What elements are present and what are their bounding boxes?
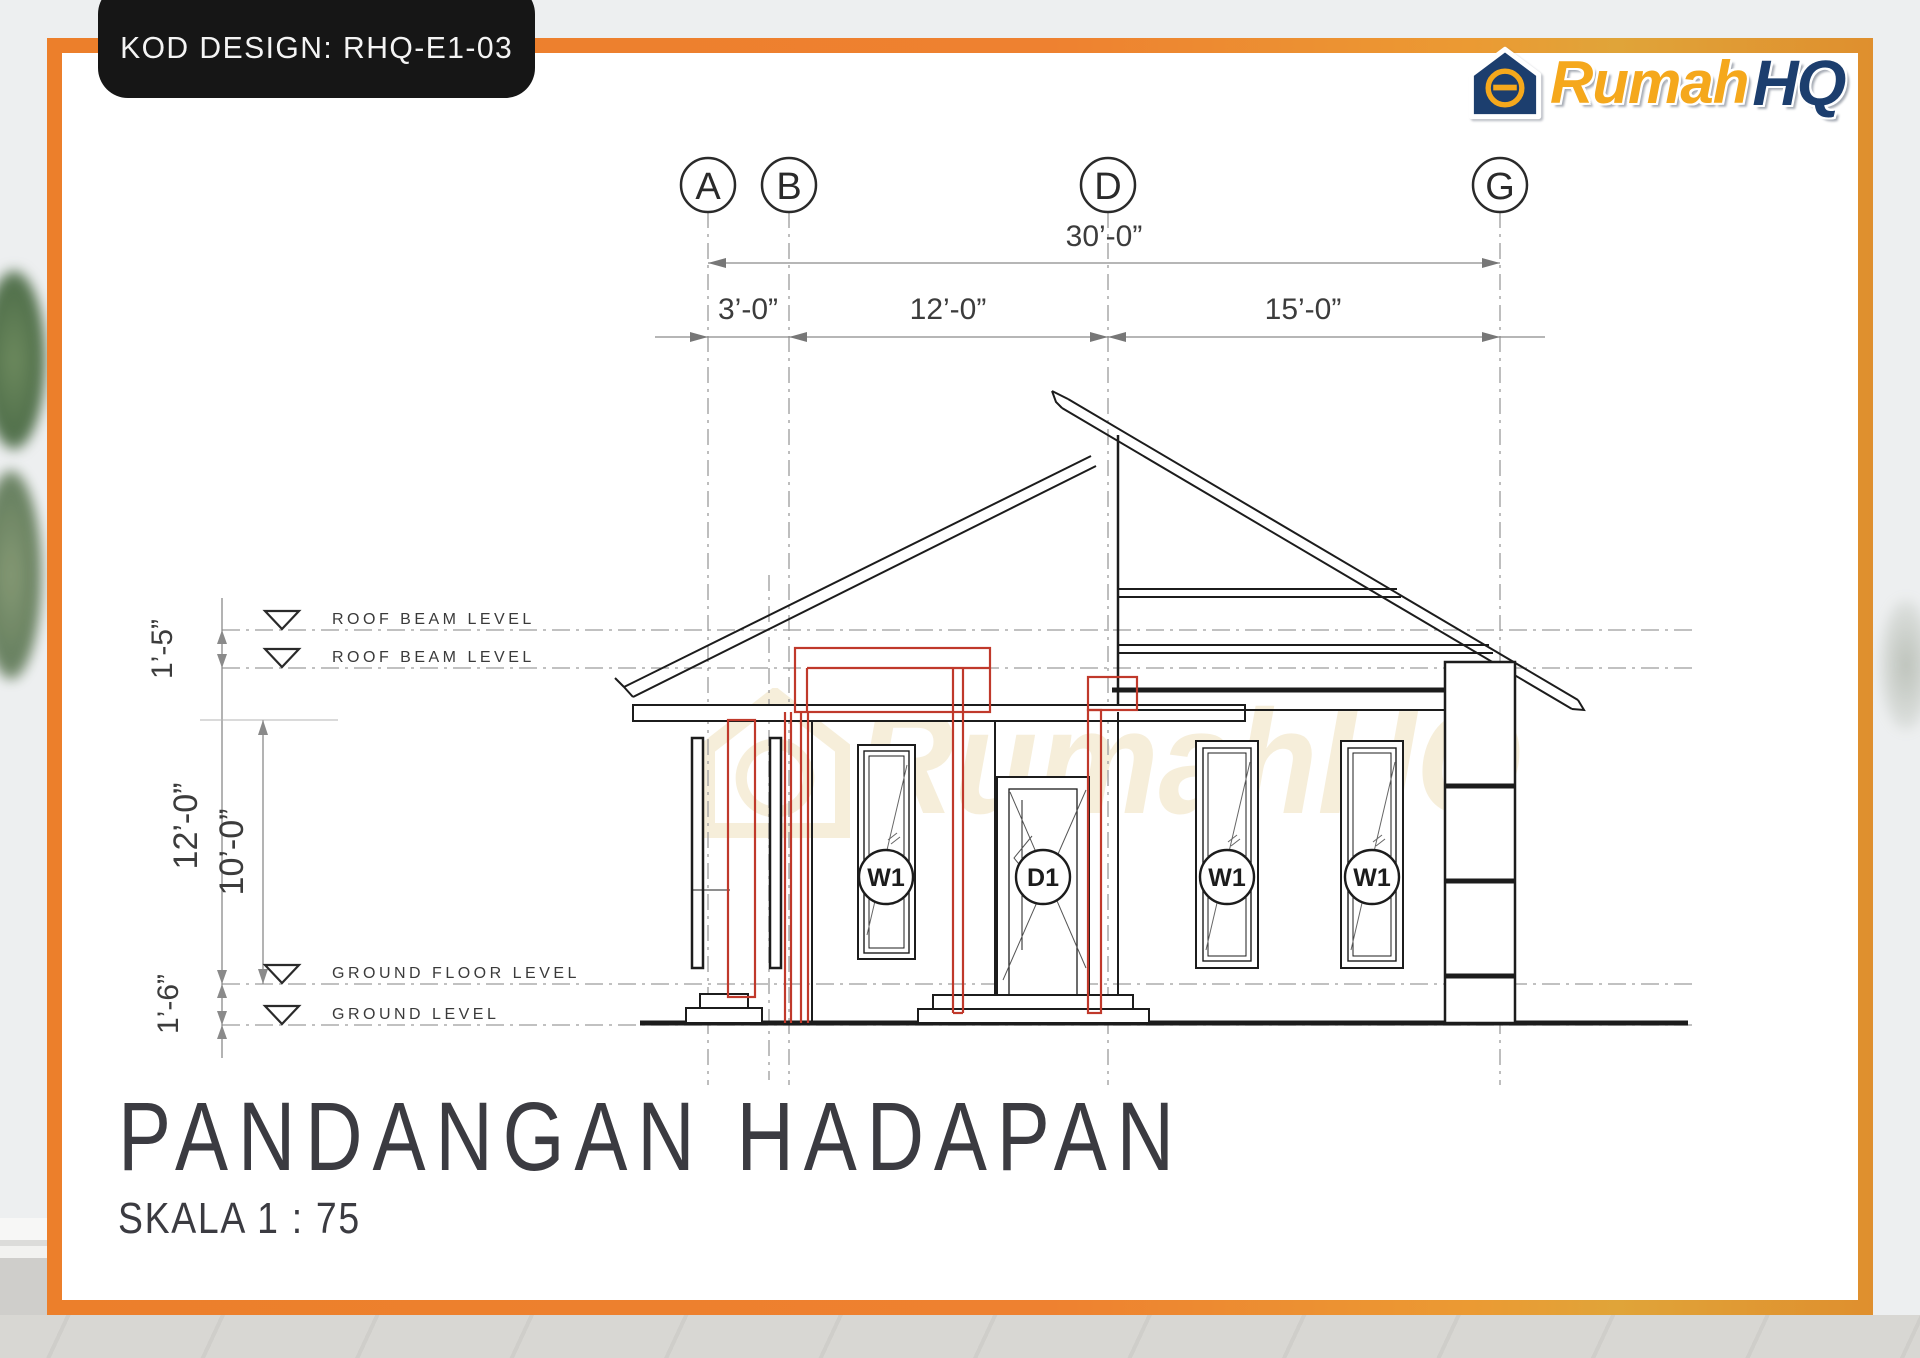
porch-columns (686, 738, 781, 1023)
grid-letter-B: B (776, 166, 801, 208)
dimension-arrows-horizontal (690, 258, 1500, 342)
label-roof-beam-level-2: ROOF BEAM LEVEL (332, 649, 535, 666)
level-labels: ROOF BEAM LEVEL ROOF BEAM LEVEL GROUND F… (332, 611, 580, 1023)
grid-letter-D: D (1094, 166, 1121, 208)
dimension-texts-vertical: 1’-5” 12’-0” 10’-0” 1’-6” (146, 619, 251, 1034)
view-scale: SKALA 1 : 75 (118, 1194, 1223, 1244)
logo-house-icon (1468, 46, 1542, 120)
dim-seg-2: 12’-0” (910, 293, 987, 326)
design-code-text: KOD DESIGN: RHQ-E1-03 (120, 30, 513, 66)
house-structure (615, 391, 1688, 1023)
brand-logo: Rumah HQ (1468, 46, 1844, 120)
logo-text-hq: HQ (1752, 51, 1844, 115)
design-code-badge: KOD DESIGN: RHQ-E1-03 (98, 0, 535, 98)
dim-wall-height: 12’-0” (167, 783, 205, 870)
gable-beams (1118, 589, 1493, 653)
logo-text-rumah: Rumah (1550, 53, 1748, 113)
dim-inner-height: 10’-0” (213, 809, 251, 896)
grid-letter-G: G (1485, 166, 1515, 208)
label-roof-beam-level-1: ROOF BEAM LEVEL (332, 611, 535, 628)
tag-door: D1 (1027, 864, 1059, 892)
red-column-porch (728, 720, 755, 997)
roof-left (615, 456, 1096, 697)
title-block: PANDANGAN HADAPAN SKALA 1 : 75 (118, 1086, 1418, 1244)
grid-bubble-letters: A B D G (695, 166, 1514, 208)
dim-roof-gap: 1’-5” (146, 619, 179, 679)
label-ground-floor-level: GROUND FLOOR LEVEL (332, 965, 580, 982)
dim-seg-1: 3’-0” (718, 293, 778, 326)
dim-plinth: 1’-6” (152, 974, 185, 1034)
dimension-texts-horizontal: 30’-0” 3’-0” 12’-0” 15’-0” (718, 220, 1341, 326)
red-column-door-right (1088, 677, 1137, 1013)
view-title: PANDANGAN HADAPAN (118, 1086, 1184, 1188)
tag-window-1: W1 (867, 864, 905, 892)
grid-letter-A: A (695, 166, 721, 208)
dim-overall: 30’-0” (1066, 220, 1143, 253)
tag-window-3: W1 (1353, 864, 1391, 892)
elevation-sheet: RumahHQ A B D G (0, 0, 1920, 1358)
opening-tags: W1 D1 W1 W1 (859, 850, 1399, 904)
dim-seg-3: 15’-0” (1265, 293, 1342, 326)
level-markers (265, 611, 299, 1024)
tag-window-2: W1 (1208, 864, 1246, 892)
right-pillar (1445, 662, 1515, 1023)
red-beam (795, 648, 990, 712)
label-ground-level: GROUND LEVEL (332, 1006, 499, 1023)
